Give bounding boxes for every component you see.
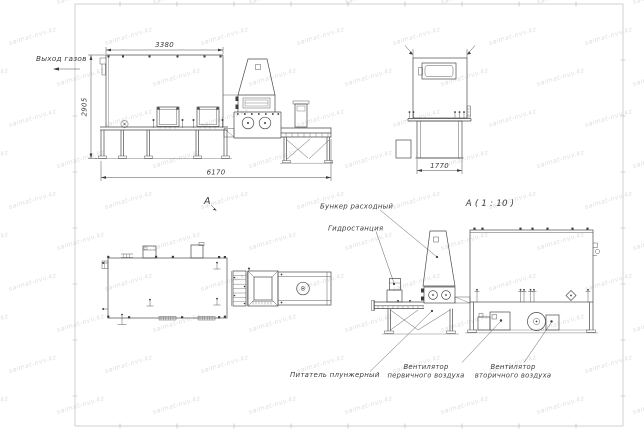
- furnace-legs: [101, 130, 227, 156]
- callout-feeder: Питатель плунжерный: [290, 371, 380, 379]
- rear-top-bolts: [473, 228, 588, 230]
- gas-flow-arrow: [53, 67, 80, 70]
- plan-bellows: [232, 271, 248, 306]
- callout-fan2-line1: Вентилятор: [490, 363, 535, 371]
- front-side-box: [396, 140, 411, 158]
- rear-diamond-port: [566, 291, 576, 301]
- rear-pin-marks: [475, 289, 591, 302]
- dim-6170-value: 6170: [207, 169, 226, 177]
- furnace-top-bolts: [108, 56, 222, 58]
- dim-6170: 6170: [101, 139, 331, 181]
- hydro-station: [387, 279, 402, 303]
- plan-body: [108, 258, 227, 318]
- callout-hydro: Гидростанция: [328, 225, 383, 233]
- callout-fan1-line2: первичного воздуха: [387, 372, 464, 380]
- hydro-column: [293, 101, 309, 127]
- rear-gas-bracket: [593, 243, 600, 256]
- secondary-fan: [528, 313, 560, 331]
- plan-bolts: [107, 256, 226, 319]
- primary-fan: [478, 312, 510, 330]
- rear-legs: [465, 302, 598, 333]
- plan-bunker: [248, 268, 278, 307]
- feeder-beam: [281, 128, 331, 138]
- callout-fan2-line2: вторичного воздуха: [475, 372, 552, 380]
- view-front: 1770 А ( 1 : 10 ): [396, 46, 514, 210]
- dim-1770-value: 1770: [430, 162, 449, 170]
- front-body: [413, 58, 467, 118]
- front-hatch: [419, 63, 457, 79]
- machine-drawing: 3380 2905 6170 Выход газов: [0, 0, 644, 430]
- callout-fan1-line1: Вентилятор: [403, 363, 448, 371]
- dim-1770: 1770: [417, 159, 462, 174]
- rear-beam-support: [382, 309, 459, 334]
- dim-3380-value: 3380: [155, 41, 174, 49]
- rear-hopper: [421, 231, 470, 303]
- rear-feeder-beam: [372, 300, 425, 311]
- view-a110-label: А ( 1 : 10 ): [465, 199, 515, 209]
- sheet-frame: [73, 2, 626, 429]
- dim-3380: 3380: [106, 41, 223, 54]
- plan-pin-marks: [118, 262, 221, 325]
- dim-2905-value: 2905: [81, 97, 89, 116]
- front-flange: [408, 119, 471, 122]
- gas-outlet-stub: [100, 58, 106, 75]
- view-a-label: А: [203, 196, 211, 207]
- view-rear: Бункер расходный Гидростанция Питатель п…: [290, 203, 600, 380]
- furnace-outline: [100, 55, 228, 130]
- callout-bunker: Бункер расходный: [320, 203, 393, 211]
- view-side: 3380 2905 6170 Выход газов: [36, 41, 333, 211]
- valve-symbol: [121, 120, 128, 127]
- front-stand: [416, 121, 464, 158]
- drawing-sheet: saimat-nvv.kzsaimat-nvv.kzsaimat-nvv.kzs…: [0, 0, 644, 430]
- plan-stack-2: [191, 245, 203, 258]
- view-plan: [102, 243, 331, 325]
- rear-furnace-body: [470, 230, 593, 302]
- hatch-box-2: [193, 107, 224, 129]
- plan-grate: [121, 254, 133, 258]
- beam-support: [280, 137, 333, 163]
- hatch-box-1: [153, 107, 184, 129]
- plan-feeder: [278, 272, 331, 305]
- hopper-tower: [224, 59, 281, 138]
- gas-outlet-label: Выход газов: [36, 54, 87, 63]
- front-side-bracket: [467, 106, 471, 117]
- plan-stack-1: [143, 246, 156, 258]
